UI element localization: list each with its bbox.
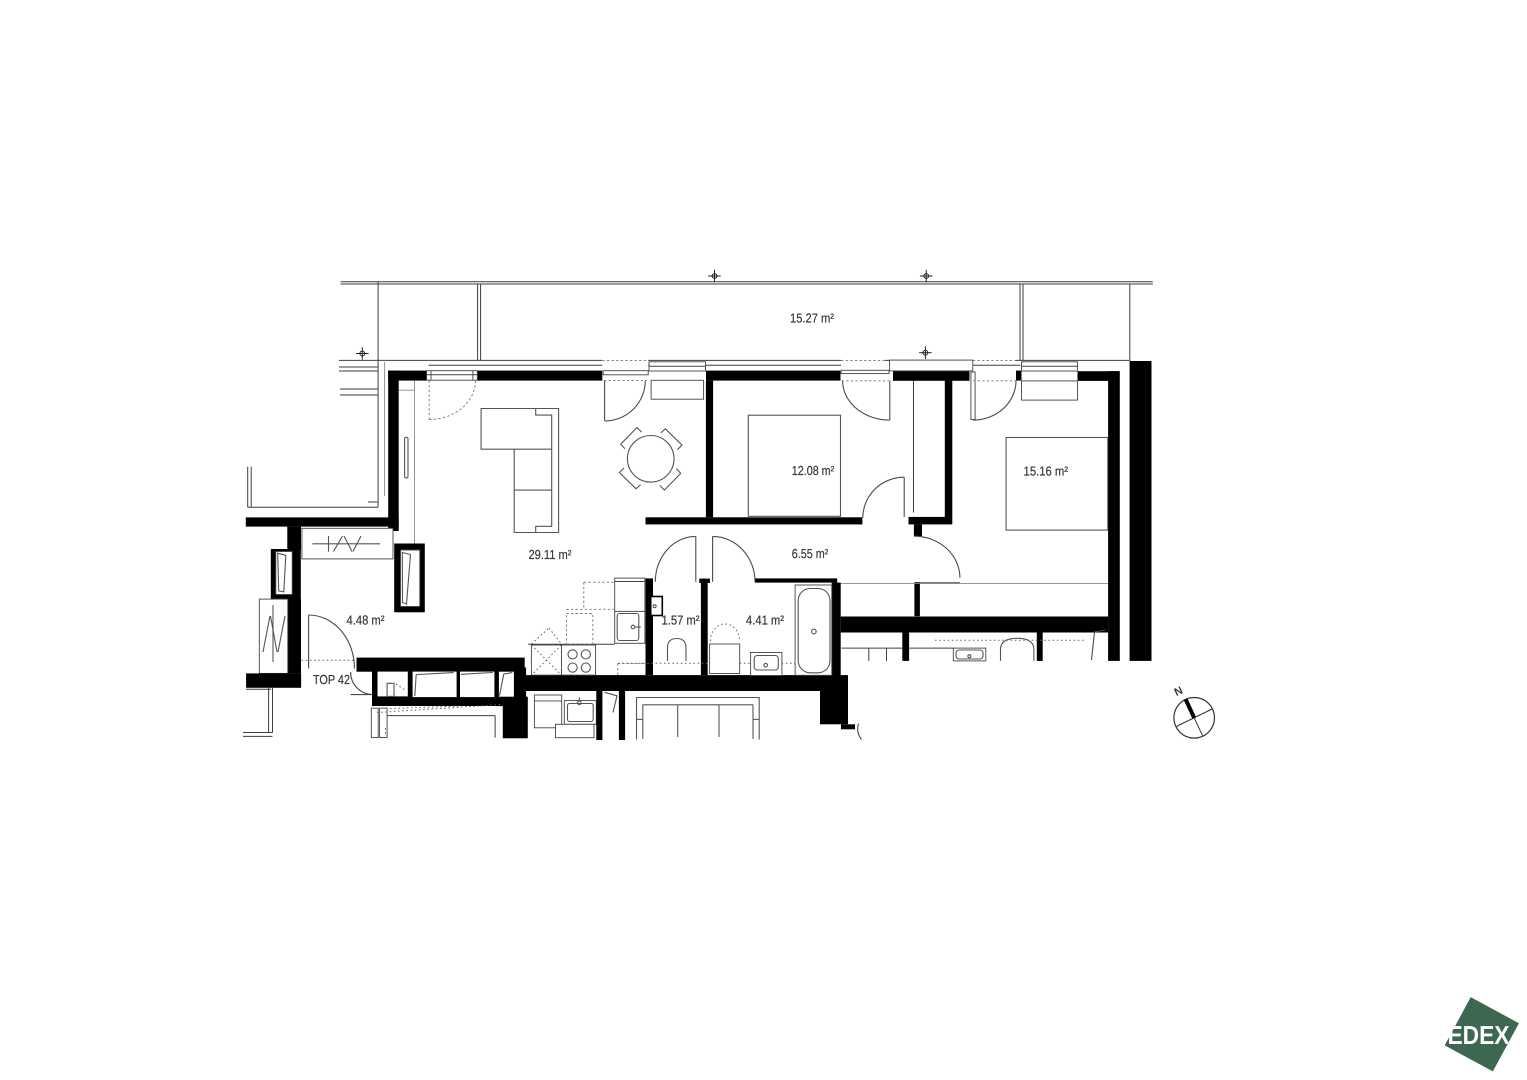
svg-text:4.48 m²: 4.48 m² [347, 613, 386, 628]
svg-text:15.16 m²: 15.16 m² [1024, 464, 1069, 479]
svg-text:12.08 m²: 12.08 m² [792, 463, 835, 478]
svg-text:29.11 m²: 29.11 m² [529, 547, 573, 562]
svg-text:EDEX: EDEX [1448, 1020, 1511, 1050]
svg-text:15.27 m²: 15.27 m² [790, 311, 835, 326]
svg-text:4.41 m²: 4.41 m² [746, 613, 785, 628]
svg-text:6.55 m²: 6.55 m² [792, 546, 829, 561]
svg-text:TOP 42: TOP 42 [313, 672, 350, 687]
svg-text:1.57 m²: 1.57 m² [662, 613, 701, 628]
